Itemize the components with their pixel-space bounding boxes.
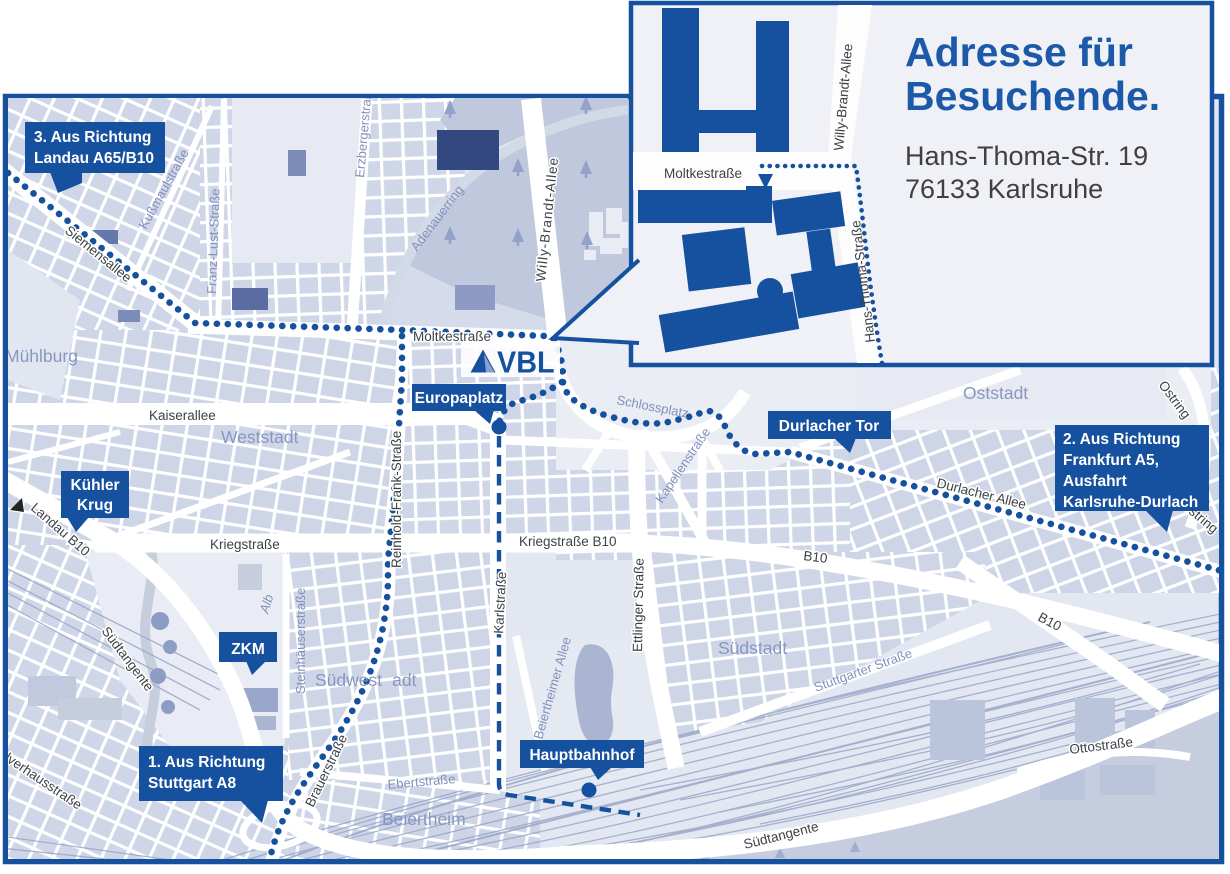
svg-text:Beiertheim: Beiertheim bbox=[382, 809, 466, 829]
svg-text:Ettlinger Straße: Ettlinger Straße bbox=[630, 558, 647, 652]
svg-text:VBL: VBL bbox=[497, 346, 555, 380]
svg-text:1. Aus Richtung: 1. Aus Richtung bbox=[148, 754, 265, 771]
svg-text:Steinhäuserstraße: Steinhäuserstraße bbox=[293, 588, 308, 694]
svg-text:Kaiserallee: Kaiserallee bbox=[149, 408, 216, 423]
svg-text:Frankfurt A5,: Frankfurt A5, bbox=[1063, 452, 1159, 469]
svg-text:Ausfahrt: Ausfahrt bbox=[1063, 473, 1127, 490]
svg-text:Kriegstraße B10: Kriegstraße B10 bbox=[519, 534, 617, 549]
svg-text:Karlsruhe-Durlach: Karlsruhe-Durlach bbox=[1063, 494, 1198, 511]
svg-text:Kriegstraße: Kriegstraße bbox=[210, 537, 280, 552]
svg-text:Adresse für: Adresse für bbox=[905, 29, 1133, 75]
svg-text:Landau A65/B10: Landau A65/B10 bbox=[34, 150, 154, 167]
svg-text:Südstadt: Südstadt bbox=[718, 638, 787, 658]
svg-text:76133 Karlsruhe: 76133 Karlsruhe bbox=[905, 174, 1103, 204]
svg-text:Durlacher Tor: Durlacher Tor bbox=[779, 418, 880, 435]
svg-text:Südwestadt: Südwestadt bbox=[315, 670, 417, 690]
svg-text:Moltkestraße: Moltkestraße bbox=[664, 166, 742, 181]
svg-text:Weststadt: Weststadt bbox=[221, 427, 299, 447]
svg-text:Hans-Thoma-Str. 19: Hans-Thoma-Str. 19 bbox=[905, 141, 1148, 171]
svg-text:Kühler: Kühler bbox=[70, 477, 119, 494]
svg-text:Hauptbahnhof: Hauptbahnhof bbox=[529, 747, 635, 764]
svg-text:Mühlburg: Mühlburg bbox=[5, 346, 78, 366]
svg-text:2. Aus Richtung: 2. Aus Richtung bbox=[1063, 431, 1180, 448]
svg-text:Oststadt: Oststadt bbox=[963, 383, 1028, 403]
svg-text:Stuttgart A8: Stuttgart A8 bbox=[148, 775, 236, 792]
svg-text:3. Aus Richtung: 3. Aus Richtung bbox=[34, 129, 151, 146]
svg-text:ZKM: ZKM bbox=[231, 641, 265, 658]
svg-text:Europaplatz: Europaplatz bbox=[415, 390, 504, 407]
svg-text:Besuchende.: Besuchende. bbox=[905, 73, 1160, 119]
svg-text:Reinhold-Frank-Straße: Reinhold-Frank-Straße bbox=[389, 431, 404, 568]
svg-text:Krug: Krug bbox=[77, 497, 113, 514]
svg-text:B10: B10 bbox=[803, 548, 829, 566]
